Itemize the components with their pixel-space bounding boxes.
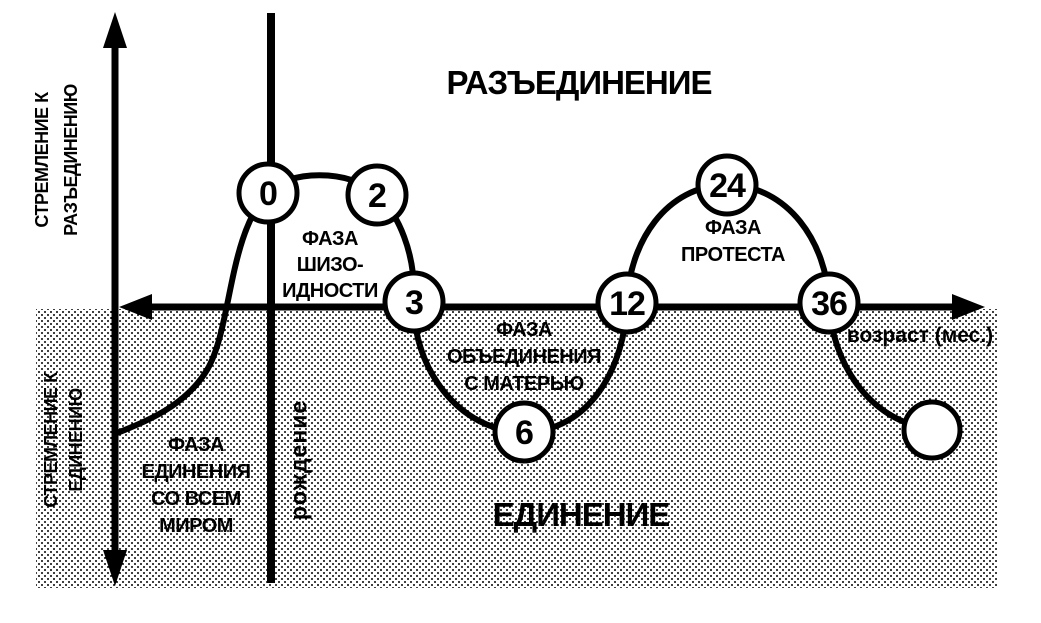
developmental-phases-diagram: 0 2 3 6 12 24 36 РАЗЪЕДИНЕНИЕ ЕДИНЕНИЕ С… <box>0 0 1041 623</box>
y-axis-down-arrow-icon <box>103 550 127 586</box>
x-axis-left-arrow-icon <box>119 294 152 320</box>
y-axis-bottom-label-line2: ЕДИНЕНИЮ <box>64 372 89 507</box>
phase-union-line2: ОБЪЕДИНЕНИЯ <box>404 344 644 371</box>
milestone-label-6: 6 <box>515 414 533 452</box>
phase-protest-line2: ПРОТЕСТА <box>633 242 833 269</box>
x-axis-right-arrow-icon <box>952 294 985 320</box>
y-axis-up-arrow-icon <box>103 12 127 48</box>
phase-schizoid-line2: ШИЗО- <box>230 252 430 278</box>
disunity-title: РАЗЪЕДИНЕНИЕ <box>429 64 729 102</box>
y-axis-bottom-label-line1: СТРЕМЛЕНИЕ К <box>39 372 64 507</box>
y-axis-top-label: СТРЕМЛЕНИЕ К РАЗЪЕДИНЕНИЮ <box>28 84 86 236</box>
phase-protest-label: ФАЗА ПРОТЕСТА <box>633 215 833 269</box>
milestone-circle-empty <box>904 402 960 458</box>
phase-schizoid-line3: ИДНОСТИ <box>230 278 430 304</box>
phase-union-line1: ФАЗА <box>404 317 644 344</box>
phase-protest-line1: ФАЗА <box>633 215 833 242</box>
milestone-label-0: 0 <box>259 175 277 213</box>
milestone-label-24: 24 <box>709 167 746 205</box>
milestone-label-2: 2 <box>368 177 386 215</box>
x-axis-label: возраст (мес.) <box>820 324 1020 348</box>
phase-union-with-mother-label: ФАЗА ОБЪЕДИНЕНИЯ С МАТЕРЬЮ <box>404 317 644 398</box>
y-axis-bottom-label: СТРЕМЛЕНИЕ К ЕДИНЕНИЮ <box>39 372 89 507</box>
phase-world-line4: МИРОМ <box>96 513 296 540</box>
unity-title: ЕДИНЕНИЕ <box>431 496 731 534</box>
phase-world-line1: ФАЗА <box>96 432 296 459</box>
phase-world-line3: СО ВСЕМ <box>96 486 296 513</box>
phase-schizoid-label: ФАЗА ШИЗО- ИДНОСТИ <box>230 226 430 304</box>
phase-union-line3: С МАТЕРЬЮ <box>404 371 644 398</box>
y-axis-top-label-line1: СТРЕМЛЕНИЕ К <box>28 84 57 236</box>
y-axis-top-label-line2: РАЗЪЕДИНЕНИЮ <box>57 84 86 236</box>
phase-unity-with-world-label: ФАЗА ЕДИНЕНИЯ СО ВСЕМ МИРОМ <box>96 432 296 540</box>
phase-world-line2: ЕДИНЕНИЯ <box>96 459 296 486</box>
milestone-label-36: 36 <box>811 285 847 323</box>
phase-schizoid-line1: ФАЗА <box>230 226 430 252</box>
